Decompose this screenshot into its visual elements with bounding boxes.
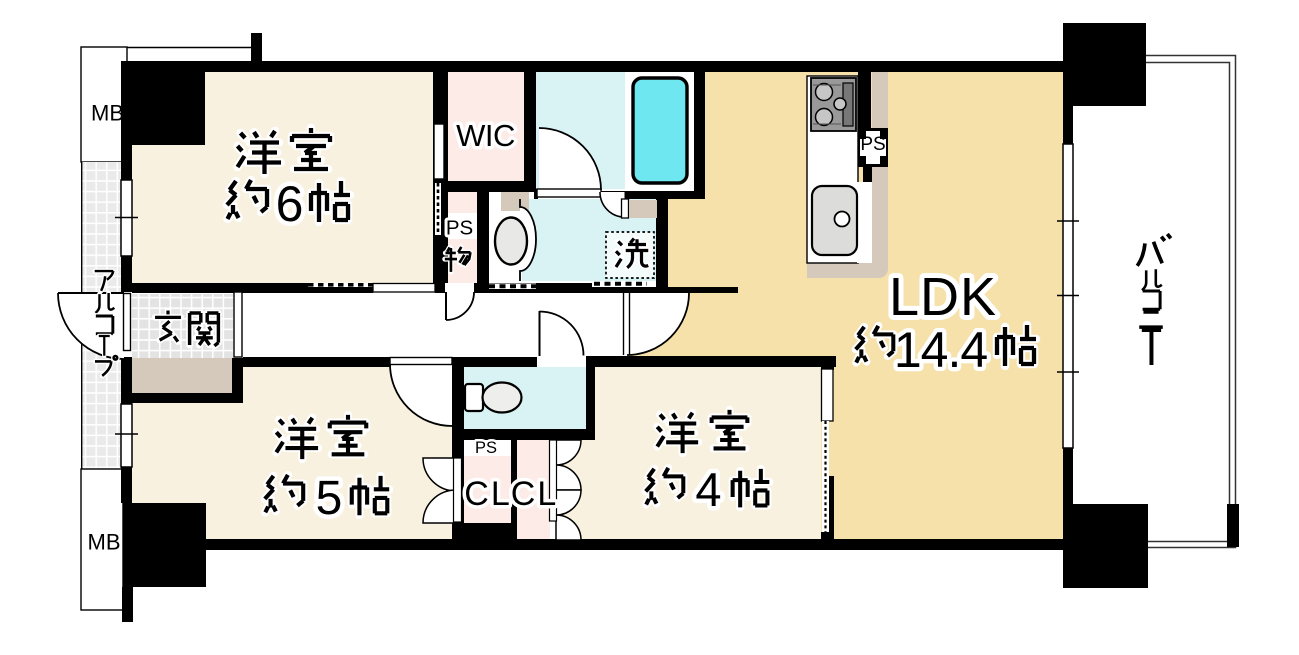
svg-text:PS: PS (860, 134, 885, 155)
svg-text:MB: MB (88, 530, 121, 555)
svg-text:PS: PS (475, 439, 497, 457)
svg-text:14.4: 14.4 (894, 322, 988, 378)
svg-text:MB: MB (91, 101, 124, 126)
svg-text:WIC: WIC (456, 118, 515, 153)
svg-text:LDK: LDK (889, 267, 997, 327)
svg-text:CL: CL (464, 475, 511, 513)
svg-text:CL: CL (511, 475, 558, 513)
svg-text:4: 4 (695, 463, 721, 516)
svg-text:PS: PS (446, 217, 473, 240)
svg-text:5: 5 (316, 472, 343, 525)
svg-text:6: 6 (276, 176, 304, 232)
